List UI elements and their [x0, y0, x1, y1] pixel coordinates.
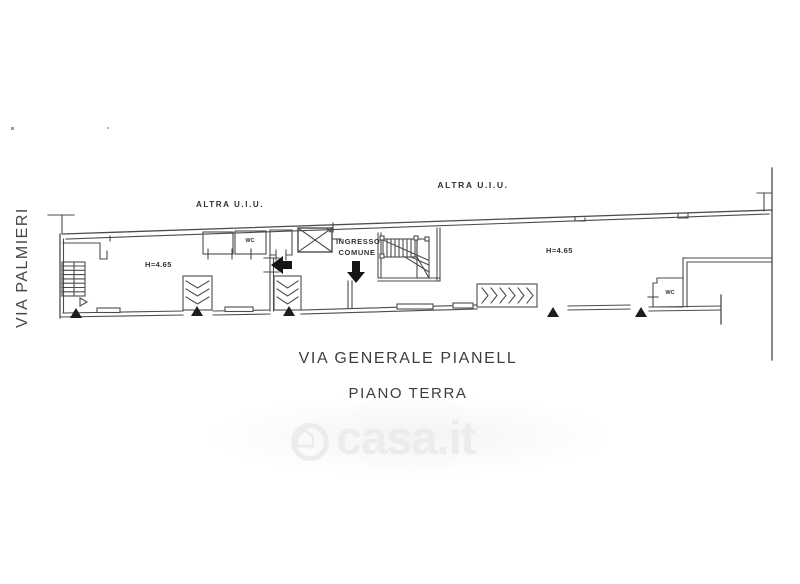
entrance-arrow-left-icon: [271, 256, 292, 274]
floor-plan-page: VIA PALMIERI ALTRA U.I.U. ALTRA U.I.U. H…: [0, 0, 800, 584]
door-swing-icon: [80, 298, 87, 306]
entrance-marker-3: [283, 306, 295, 316]
street-label-via-palmieri: VIA PALMIERI: [14, 208, 34, 328]
entrance-marker-5: [635, 307, 647, 317]
common-entrance-label-line1: INGRESSO: [336, 236, 378, 247]
bottom-walls: [60, 281, 721, 324]
common-entrance-label-line2: COMUNE: [336, 247, 378, 258]
common-entrance-stairs-icon: [378, 228, 440, 281]
watermark-logo-circle: [291, 423, 329, 461]
other-unit-label-left: ALTRA U.I.U.: [196, 200, 260, 209]
ramp-chevrons-left-icon: [183, 276, 212, 310]
entrance-marker-2: [191, 306, 203, 316]
elevator-shaft-icon: [298, 228, 341, 252]
scan-specks: [11, 127, 109, 130]
entrance-marker-4: [547, 307, 559, 317]
street-label-via-generale-pianell: VIA GENERALE PIANELL: [258, 350, 558, 368]
floor-plan-drawing: [0, 0, 800, 584]
entrance-arrow-down-icon: [347, 261, 365, 283]
watermark-house-icon: [296, 428, 314, 448]
ramp-chevrons-center-icon: [274, 276, 301, 310]
watermark-text: casa.it: [336, 412, 475, 464]
storage-rooms: [203, 230, 292, 260]
left-stairs-icon: [62, 262, 85, 296]
ramp-chevrons-right-icon: [477, 284, 537, 307]
ceiling-height-label-left: H=4.65: [145, 260, 172, 269]
wc-label-left: WC: [241, 238, 259, 244]
common-entrance-label: INGRESSO COMUNE: [336, 236, 378, 258]
floor-level-label: PIANO TERRA: [258, 385, 558, 402]
right-unit-walls: [683, 258, 772, 307]
wc-label-right: WC: [660, 290, 680, 296]
left-unit-walls: [63, 243, 107, 259]
ceiling-height-label-right: H=4.65: [546, 246, 573, 255]
other-unit-label-right: ALTRA U.I.U.: [436, 180, 510, 190]
